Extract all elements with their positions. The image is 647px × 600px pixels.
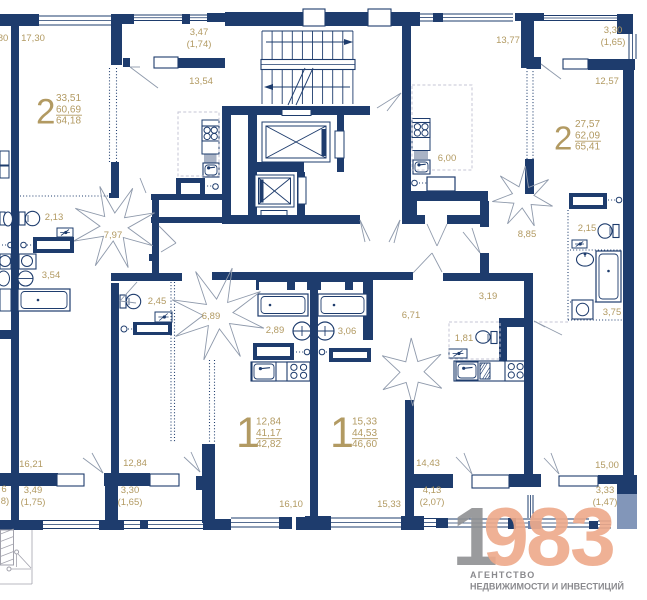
svg-text:6,89: 6,89 — [202, 311, 221, 322]
svg-text:42,82: 42,82 — [256, 439, 281, 450]
svg-text:12,84: 12,84 — [256, 417, 281, 428]
svg-text:27,57: 27,57 — [575, 119, 600, 130]
svg-text:2,45: 2,45 — [148, 296, 167, 307]
svg-text:3,75: 3,75 — [603, 307, 622, 318]
svg-text:13,54: 13,54 — [189, 76, 213, 87]
svg-text:3,30: 3,30 — [604, 25, 623, 36]
svg-text:6,71: 6,71 — [402, 310, 421, 321]
svg-text:46,60: 46,60 — [352, 439, 377, 450]
svg-text:7,97: 7,97 — [104, 230, 123, 241]
svg-text:16,10: 16,10 — [279, 499, 303, 510]
svg-text:АГЕНТСТВО: АГЕНТСТВО — [470, 570, 535, 580]
svg-text:3,47: 3,47 — [190, 27, 209, 38]
svg-text:(1,65): (1,65) — [118, 497, 143, 508]
svg-text:44,53: 44,53 — [352, 428, 377, 439]
svg-text:33,51: 33,51 — [56, 93, 81, 104]
svg-text:64,18: 64,18 — [56, 116, 81, 127]
svg-text:12,57: 12,57 — [595, 76, 619, 87]
svg-text:2,89: 2,89 — [266, 325, 285, 336]
svg-text:15,00: 15,00 — [595, 460, 619, 471]
svg-text:15,33: 15,33 — [352, 417, 377, 428]
svg-text:65,41: 65,41 — [575, 142, 600, 153]
svg-text:(2,07): (2,07) — [420, 497, 445, 508]
svg-text:62,09: 62,09 — [575, 130, 600, 141]
svg-text:6,00: 6,00 — [438, 153, 457, 164]
svg-text:15,33: 15,33 — [377, 499, 401, 510]
svg-text:3,49: 3,49 — [24, 485, 43, 496]
svg-text:1: 1 — [330, 409, 354, 457]
svg-text:12,84: 12,84 — [123, 458, 147, 469]
svg-text:3,19: 3,19 — [479, 291, 498, 302]
svg-text:2,13: 2,13 — [45, 212, 64, 223]
svg-text:2,15: 2,15 — [578, 223, 597, 234]
svg-text:6: 6 — [1, 484, 6, 495]
svg-text:8,85: 8,85 — [518, 229, 537, 240]
svg-text:(1,65): (1,65) — [601, 37, 626, 48]
svg-text:17,30: 17,30 — [21, 33, 45, 44]
svg-text:3,30: 3,30 — [121, 485, 140, 496]
svg-text:3,54: 3,54 — [42, 270, 61, 281]
svg-text:1,81: 1,81 — [455, 333, 474, 344]
svg-text:60,69: 60,69 — [56, 104, 81, 115]
svg-text:3,06: 3,06 — [338, 326, 357, 337]
svg-text:8): 8) — [1, 496, 9, 507]
svg-text:НЕДВИЖИМОСТИ И ИНВЕСТИЦИЙ: НЕДВИЖИМОСТИ И ИНВЕСТИЦИЙ — [470, 581, 624, 592]
svg-text:16,21: 16,21 — [19, 459, 43, 470]
svg-text:(1,75): (1,75) — [21, 497, 46, 508]
svg-text:2: 2 — [36, 93, 55, 132]
svg-text:80: 80 — [0, 33, 8, 44]
svg-text:13,77: 13,77 — [496, 35, 520, 46]
svg-text:4,13: 4,13 — [423, 485, 442, 496]
svg-text:2: 2 — [554, 120, 572, 157]
svg-text:(1,74): (1,74) — [187, 39, 212, 50]
svg-text:41,17: 41,17 — [256, 428, 281, 439]
svg-text:14,43: 14,43 — [416, 458, 440, 469]
